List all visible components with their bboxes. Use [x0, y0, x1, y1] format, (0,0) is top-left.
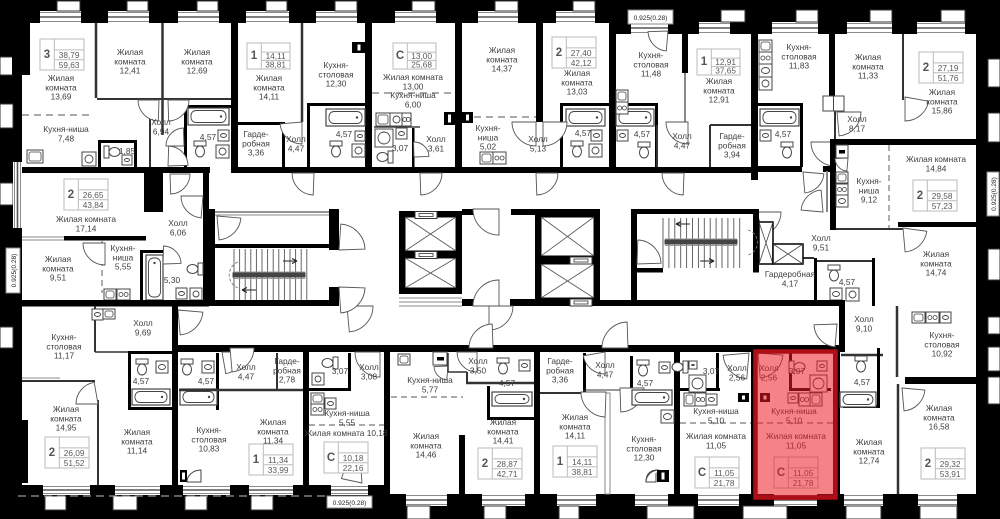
- svg-text:2: 2: [49, 447, 55, 459]
- svg-text:6,06: 6,06: [170, 227, 187, 237]
- svg-text:6,00: 6,00: [405, 99, 422, 109]
- svg-text:2: 2: [68, 189, 74, 201]
- svg-text:4,57: 4,57: [200, 132, 217, 142]
- svg-text:3,07: 3,07: [332, 366, 349, 376]
- svg-text:4,57: 4,57: [775, 129, 792, 139]
- svg-text:С: С: [698, 467, 706, 479]
- svg-text:11,83: 11,83: [789, 61, 810, 71]
- svg-text:9,12: 9,12: [861, 195, 878, 205]
- svg-text:0.925(0.28): 0.925(0.28): [991, 177, 998, 211]
- svg-text:3,36: 3,36: [552, 375, 569, 385]
- svg-text:5,55: 5,55: [339, 417, 356, 427]
- svg-text:1: 1: [701, 56, 708, 68]
- svg-text:2: 2: [923, 62, 929, 74]
- svg-text:3,07: 3,07: [392, 143, 409, 153]
- svg-text:12,74: 12,74: [859, 456, 880, 466]
- svg-text:43,84: 43,84: [83, 200, 104, 210]
- svg-text:22,16: 22,16: [343, 463, 364, 473]
- svg-text:2: 2: [482, 458, 488, 470]
- svg-text:11,14: 11,14: [127, 446, 148, 456]
- svg-text:1: 1: [251, 50, 258, 62]
- svg-text:14,46: 14,46: [416, 450, 437, 460]
- svg-text:42,12: 42,12: [571, 58, 592, 68]
- svg-text:26,09: 26,09: [64, 448, 85, 458]
- svg-text:14,11: 14,11: [565, 431, 586, 441]
- svg-text:6,94: 6,94: [153, 126, 170, 136]
- svg-text:38,79: 38,79: [59, 50, 80, 60]
- svg-text:5,13: 5,13: [530, 143, 547, 153]
- svg-text:4,47: 4,47: [288, 143, 305, 153]
- svg-text:4,57: 4,57: [133, 376, 150, 386]
- svg-text:3,07: 3,07: [703, 366, 720, 376]
- svg-text:26,65: 26,65: [83, 190, 104, 200]
- svg-text:4,57: 4,57: [854, 377, 871, 387]
- svg-text:59,63: 59,63: [59, 60, 80, 70]
- svg-text:14,95: 14,95: [56, 423, 77, 433]
- svg-text:14,74: 14,74: [926, 268, 947, 278]
- svg-text:3,61: 3,61: [428, 143, 445, 153]
- svg-text:4,57: 4,57: [499, 378, 516, 388]
- svg-text:27,19: 27,19: [938, 63, 959, 73]
- svg-text:14,11: 14,11: [572, 457, 593, 467]
- svg-text:42,71: 42,71: [497, 469, 518, 479]
- svg-text:51,52: 51,52: [64, 458, 85, 468]
- svg-text:15,86: 15,86: [932, 106, 953, 116]
- svg-text:10,92: 10,92: [932, 349, 953, 359]
- svg-text:11,05: 11,05: [714, 468, 735, 478]
- svg-text:1,85: 1,85: [119, 146, 136, 156]
- svg-text:С: С: [396, 50, 404, 62]
- svg-text:4,17: 4,17: [782, 278, 799, 288]
- svg-text:12,30: 12,30: [634, 453, 655, 463]
- svg-text:4,57: 4,57: [637, 378, 654, 388]
- svg-text:3,94: 3,94: [724, 150, 741, 160]
- svg-text:9,10: 9,10: [856, 323, 873, 333]
- svg-text:0.925(0.28): 0.925(0.28): [11, 254, 18, 288]
- svg-text:14,11: 14,11: [259, 92, 280, 102]
- svg-text:3: 3: [44, 49, 50, 61]
- svg-text:11,48: 11,48: [641, 69, 662, 79]
- svg-text:2: 2: [925, 458, 931, 470]
- svg-text:5,02: 5,02: [480, 142, 497, 152]
- svg-text:Жилая комната 10,18: Жилая комната 10,18: [305, 428, 388, 438]
- svg-text:37,65: 37,65: [715, 65, 736, 75]
- svg-text:5,77: 5,77: [422, 384, 439, 394]
- svg-text:11,05: 11,05: [706, 440, 727, 450]
- svg-text:11,33: 11,33: [858, 71, 879, 81]
- svg-text:3,36: 3,36: [248, 148, 265, 158]
- svg-text:13,69: 13,69: [51, 92, 72, 102]
- svg-text:3,08: 3,08: [361, 371, 378, 381]
- svg-text:4,57: 4,57: [634, 129, 651, 139]
- svg-text:57,23: 57,23: [932, 201, 953, 211]
- svg-text:2,56: 2,56: [729, 372, 746, 382]
- svg-text:51,76: 51,76: [938, 73, 959, 83]
- svg-text:21,78: 21,78: [714, 478, 735, 488]
- svg-text:12,91: 12,91: [709, 95, 730, 105]
- svg-text:0.925(0.28): 0.925(0.28): [634, 15, 668, 22]
- svg-text:5,55: 5,55: [115, 262, 132, 272]
- svg-text:33,99: 33,99: [268, 465, 289, 475]
- svg-text:4,47: 4,47: [674, 140, 691, 150]
- svg-text:13,03: 13,03: [567, 87, 588, 97]
- svg-text:С: С: [327, 452, 335, 464]
- svg-text:1: 1: [557, 456, 564, 468]
- svg-text:29,58: 29,58: [932, 191, 953, 201]
- svg-text:11,17: 11,17: [54, 351, 75, 361]
- svg-text:29,32: 29,32: [940, 459, 961, 469]
- svg-text:2,78: 2,78: [279, 375, 296, 385]
- svg-text:17,14: 17,14: [76, 223, 97, 233]
- svg-text:3,50: 3,50: [470, 365, 487, 375]
- svg-text:38,81: 38,81: [572, 467, 593, 477]
- svg-text:25,68: 25,68: [411, 59, 432, 69]
- svg-text:10,83: 10,83: [199, 444, 220, 454]
- svg-text:4,57: 4,57: [336, 129, 353, 139]
- svg-text:12,69: 12,69: [187, 66, 208, 76]
- svg-text:5,30: 5,30: [164, 275, 181, 285]
- svg-text:12,41: 12,41: [120, 66, 141, 76]
- svg-text:7,48: 7,48: [58, 133, 75, 143]
- svg-text:4,47: 4,47: [597, 369, 614, 379]
- svg-text:2: 2: [917, 190, 923, 202]
- svg-text:38,81: 38,81: [265, 59, 286, 69]
- svg-text:2: 2: [556, 47, 562, 59]
- svg-text:12,30: 12,30: [326, 79, 347, 89]
- svg-text:53,91: 53,91: [940, 469, 961, 479]
- svg-text:1: 1: [253, 454, 260, 466]
- svg-text:9,69: 9,69: [135, 327, 152, 337]
- svg-text:0.925(0.28): 0.925(0.28): [333, 500, 367, 507]
- svg-text:5,10: 5,10: [708, 415, 725, 425]
- svg-text:14,41: 14,41: [493, 436, 514, 446]
- svg-text:16,58: 16,58: [929, 422, 950, 432]
- svg-text:9,51: 9,51: [50, 273, 67, 283]
- svg-text:11,34: 11,34: [268, 455, 289, 465]
- svg-text:4,57: 4,57: [198, 376, 215, 386]
- svg-text:4,57: 4,57: [839, 277, 856, 287]
- svg-text:4,57: 4,57: [575, 128, 592, 138]
- svg-text:27,40: 27,40: [571, 48, 592, 58]
- svg-text:10,18: 10,18: [343, 453, 364, 463]
- svg-text:28,87: 28,87: [497, 459, 518, 469]
- svg-text:14,37: 14,37: [492, 64, 513, 74]
- svg-text:14,84: 14,84: [926, 163, 947, 173]
- svg-text:4,47: 4,47: [238, 371, 255, 381]
- svg-text:8,17: 8,17: [849, 123, 866, 133]
- svg-text:9,51: 9,51: [813, 242, 830, 252]
